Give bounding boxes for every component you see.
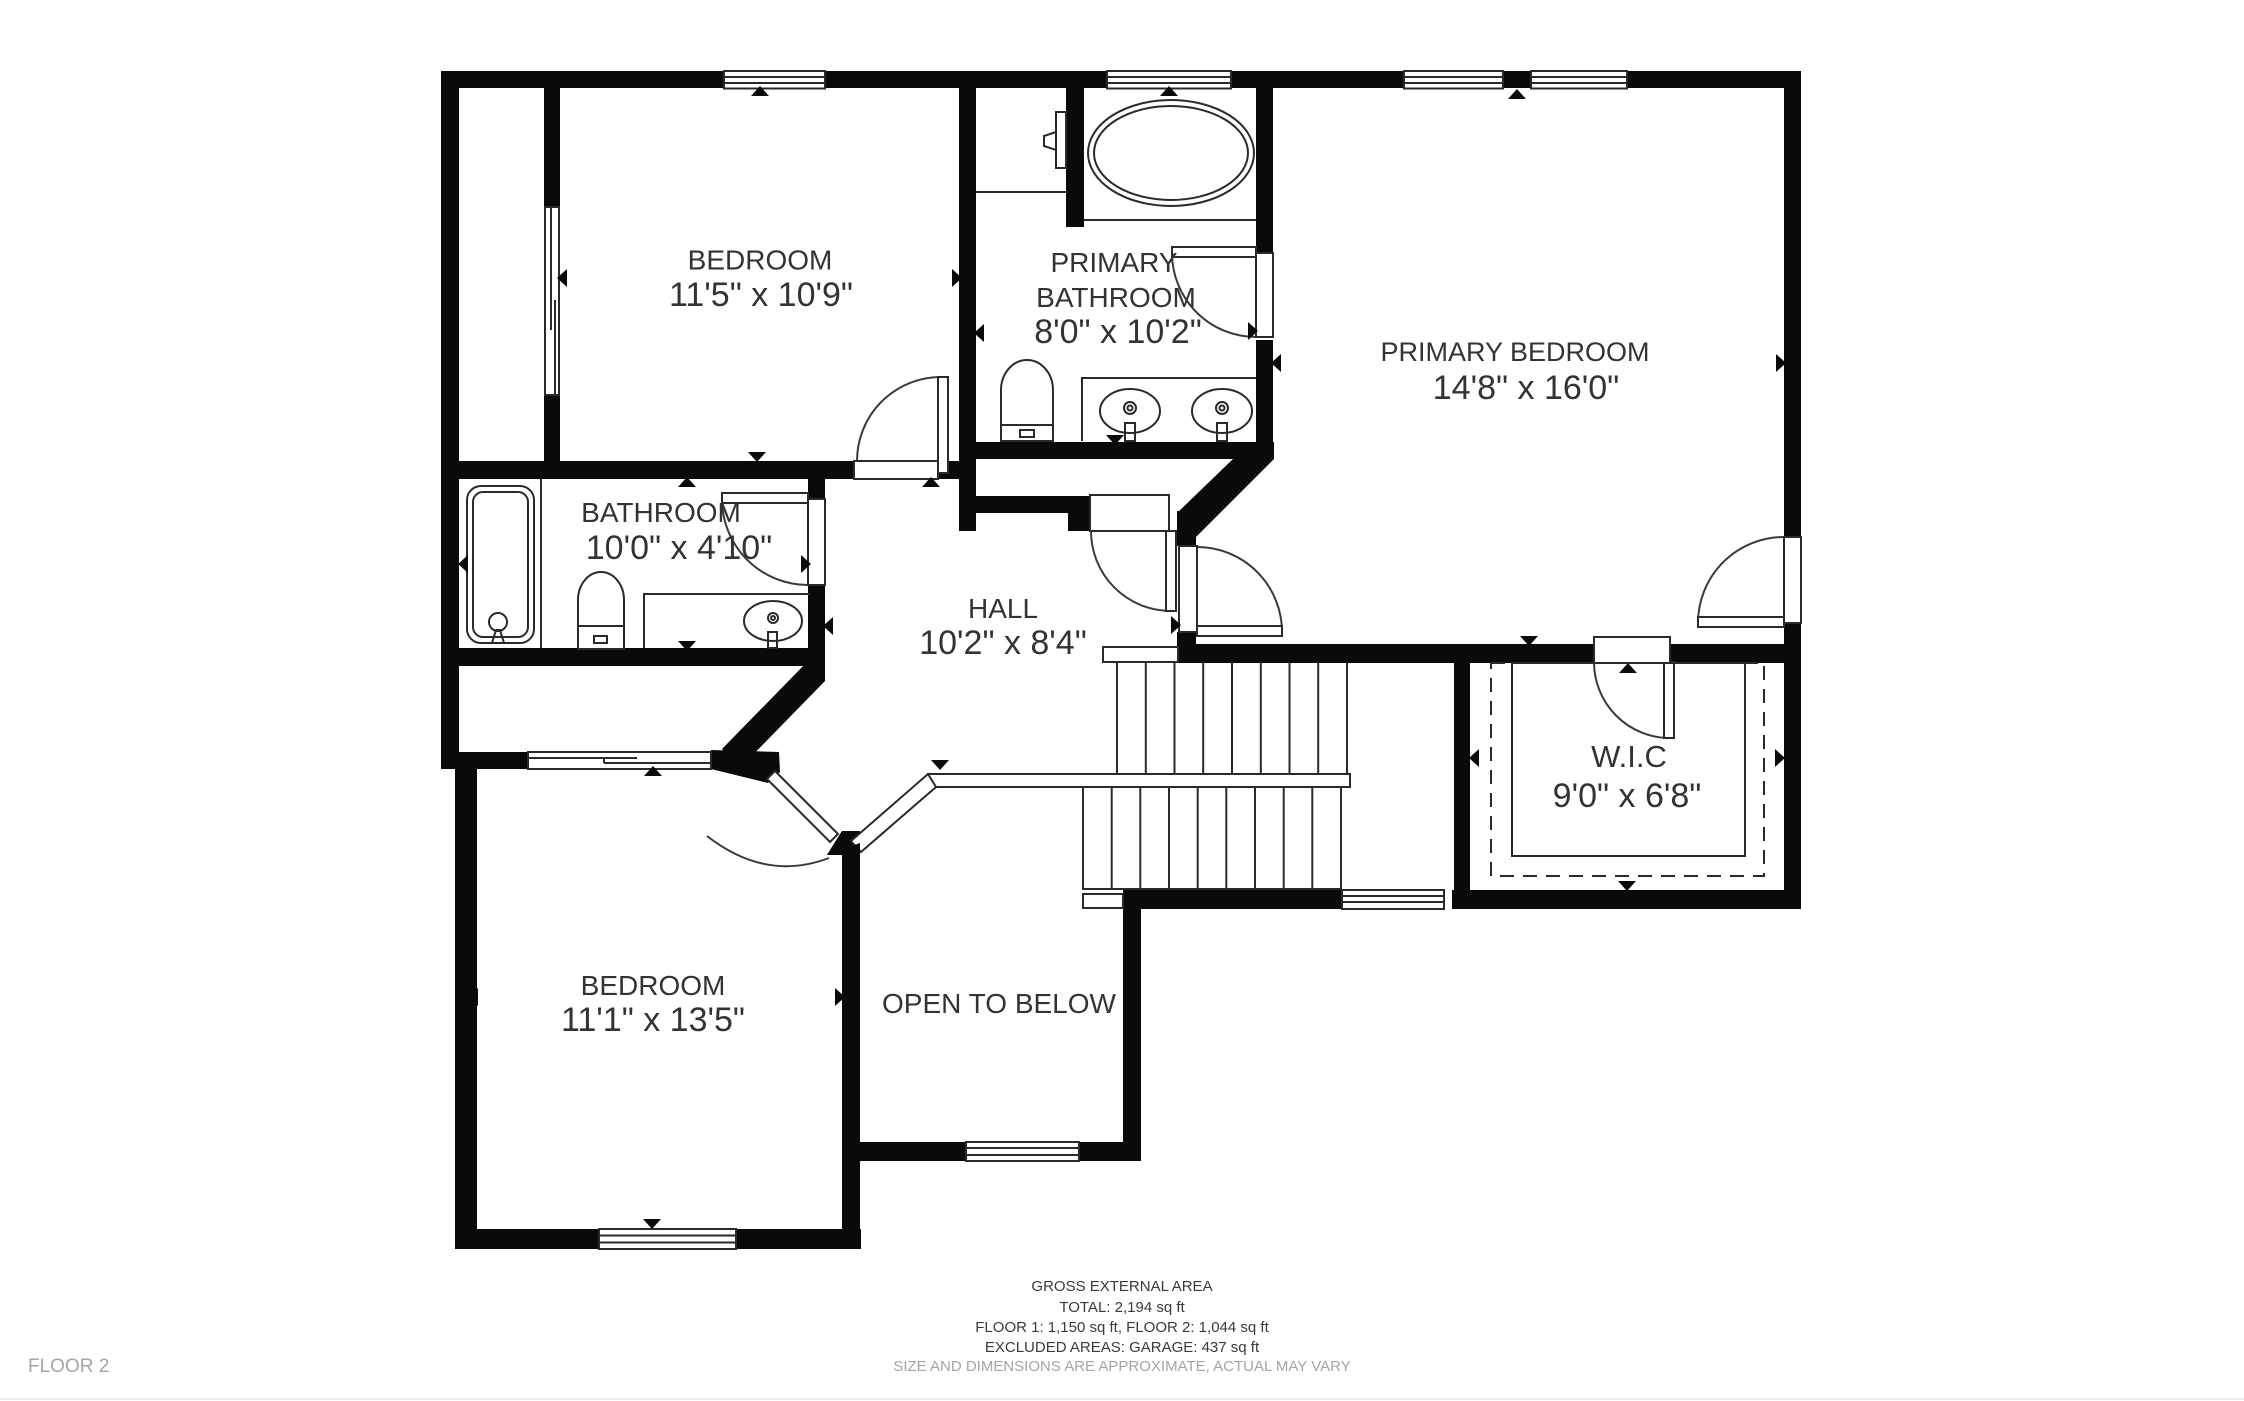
svg-text:HALL: HALL — [968, 593, 1038, 624]
svg-text:8'0" x 10'2": 8'0" x 10'2" — [1034, 313, 1202, 351]
svg-text:W.I.C: W.I.C — [1591, 739, 1667, 774]
svg-text:BEDROOM: BEDROOM — [581, 970, 726, 1001]
svg-text:TOTAL: 2,194 sq ft: TOTAL: 2,194 sq ft — [1059, 1299, 1185, 1316]
svg-text:10'2" x 8'4": 10'2" x 8'4" — [919, 624, 1087, 662]
svg-text:PRIMARY: PRIMARY — [1050, 247, 1177, 278]
svg-text:EXCLUDED AREAS: GARAGE: 437 sq: EXCLUDED AREAS: GARAGE: 437 sq ft — [985, 1339, 1260, 1356]
svg-text:10'0" x 4'10": 10'0" x 4'10" — [586, 529, 772, 567]
svg-text:11'1" x 13'5": 11'1" x 13'5" — [561, 1001, 745, 1039]
svg-text:BEDROOM: BEDROOM — [688, 245, 833, 276]
svg-text:PRIMARY BEDROOM: PRIMARY BEDROOM — [1380, 337, 1649, 367]
svg-text:OPEN TO BELOW: OPEN TO BELOW — [882, 988, 1116, 1019]
svg-text:11'5" x 10'9": 11'5" x 10'9" — [669, 276, 853, 314]
svg-text:BATHROOM: BATHROOM — [581, 497, 741, 528]
svg-text:BATHROOM: BATHROOM — [1036, 282, 1196, 313]
svg-text:FLOOR 1: 1,150 sq ft, FLOOR 2:: FLOOR 1: 1,150 sq ft, FLOOR 2: 1,044 sq … — [975, 1319, 1269, 1336]
svg-text:GROSS EXTERNAL AREA: GROSS EXTERNAL AREA — [1031, 1278, 1212, 1295]
svg-text:SIZE AND DIMENSIONS ARE APPROX: SIZE AND DIMENSIONS ARE APPROXIMATE, ACT… — [893, 1358, 1350, 1375]
svg-text:9'0" x 6'8": 9'0" x 6'8" — [1553, 777, 1702, 815]
svg-text:FLOOR 2: FLOOR 2 — [28, 1356, 109, 1377]
svg-text:14'8" x 16'0": 14'8" x 16'0" — [1433, 369, 1619, 407]
